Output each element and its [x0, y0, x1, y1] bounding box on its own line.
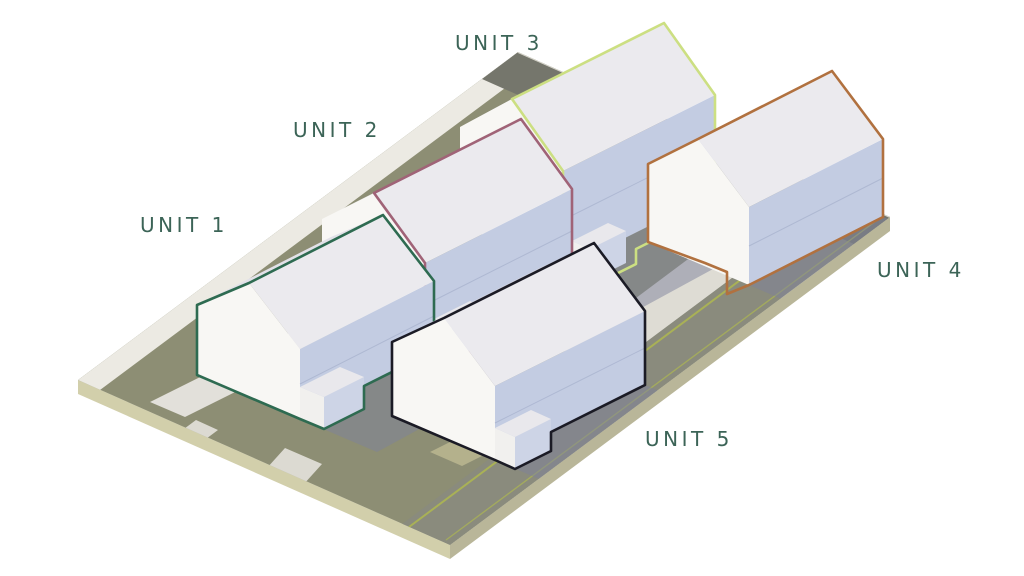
- unit-5-label: UNIT 5: [645, 427, 733, 451]
- unit-2-label: UNIT 2: [293, 118, 381, 142]
- unit-1-label: UNIT 1: [140, 213, 228, 237]
- unit-4-label: UNIT 4: [877, 258, 965, 282]
- site-axonometric-diagram: UNIT 1 UNIT 2 UNIT 3 UNIT 4 UNIT 5: [0, 0, 1024, 576]
- unit-3-label: UNIT 3: [455, 31, 543, 55]
